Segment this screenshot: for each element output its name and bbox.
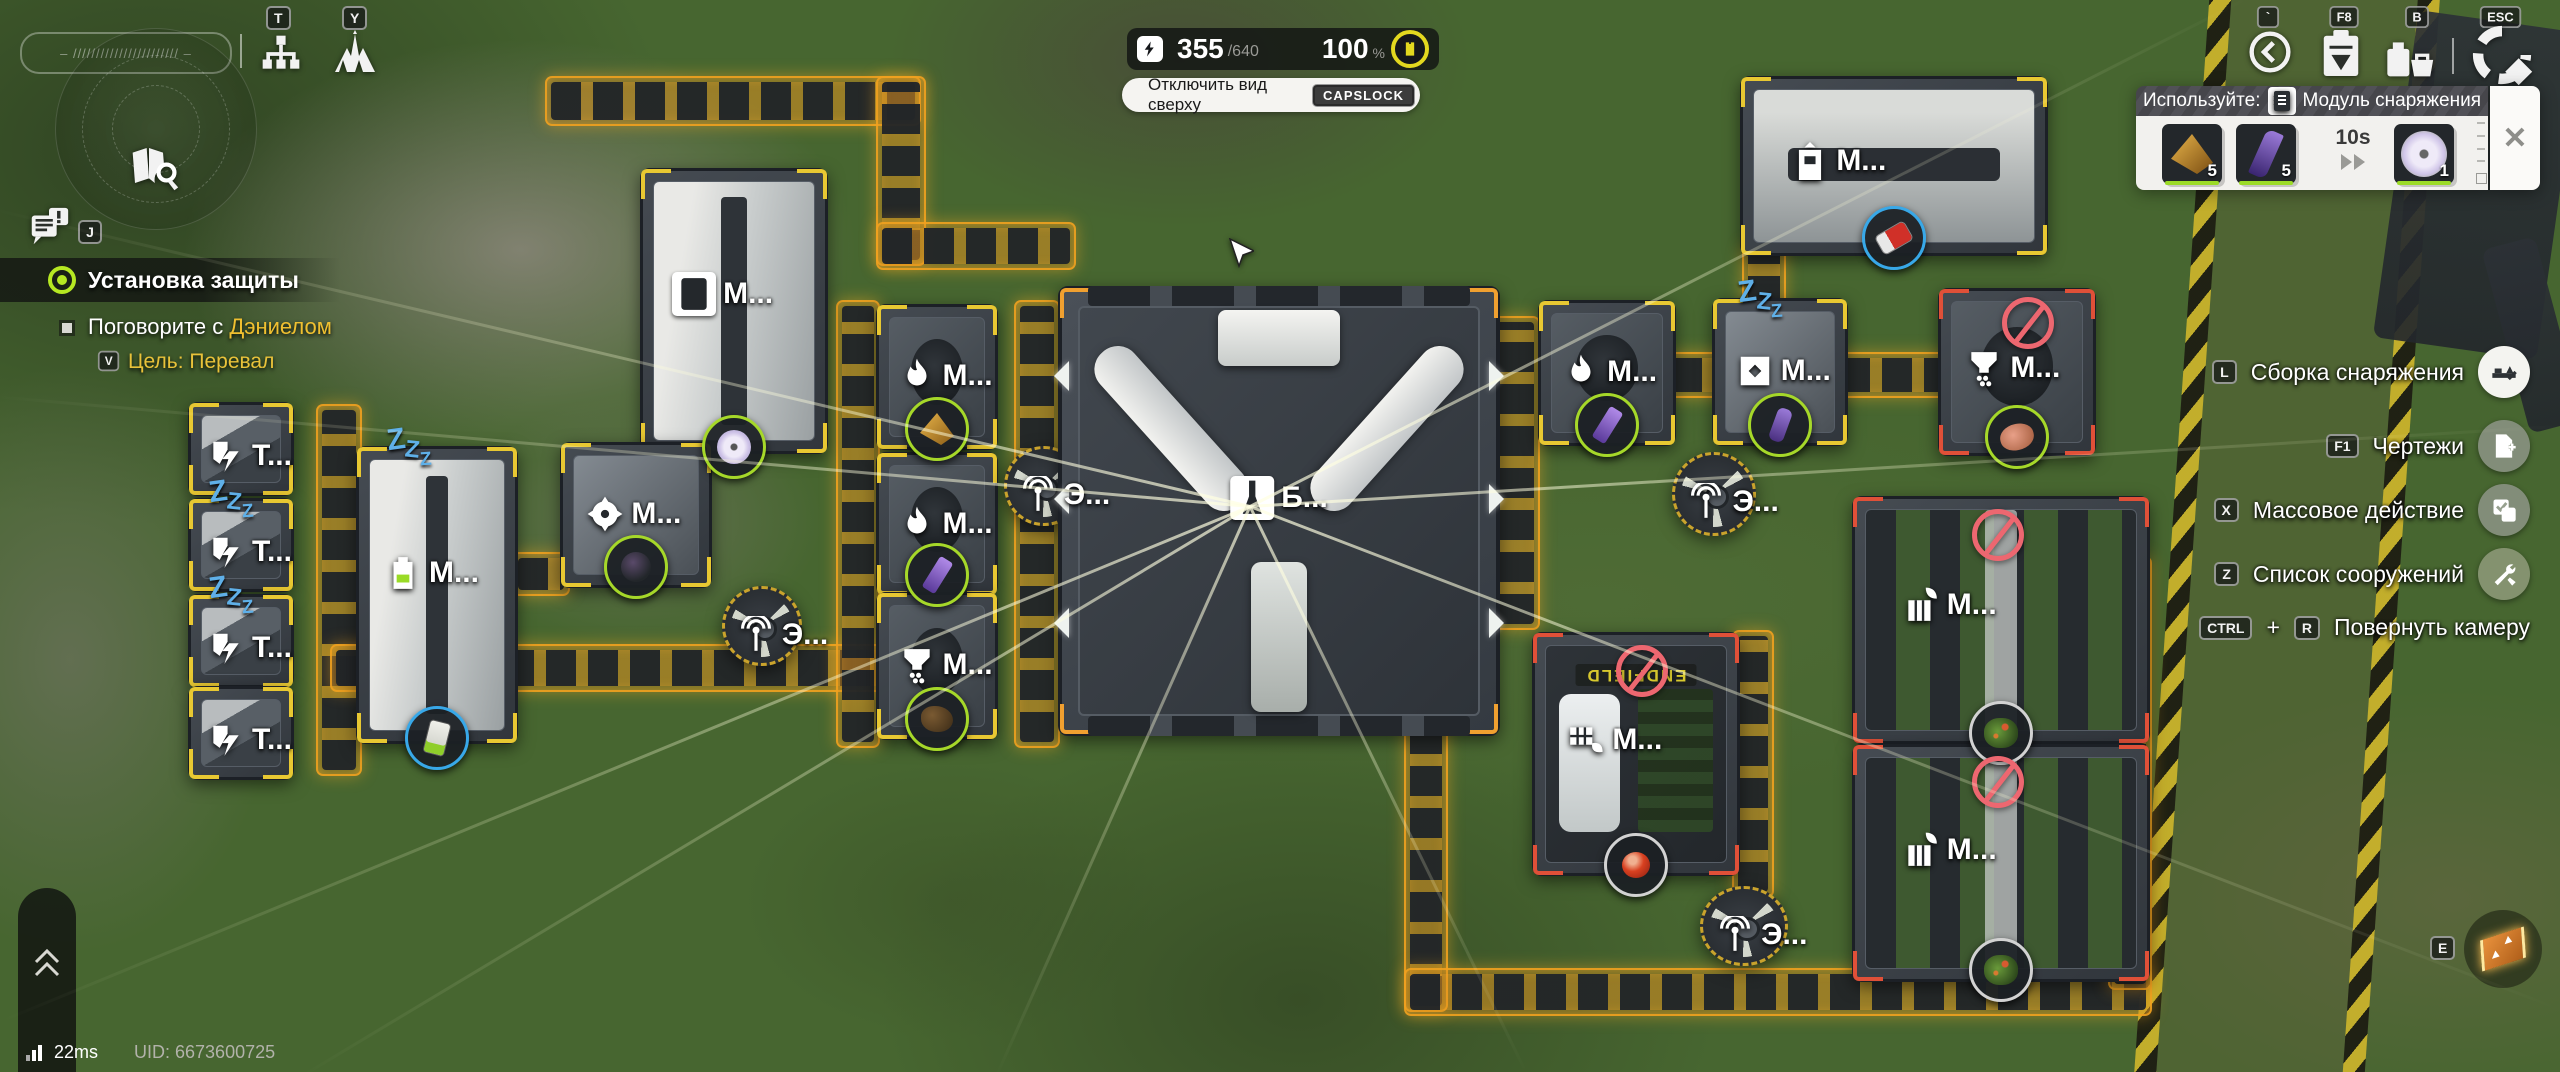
key-hint-e: E [2430,936,2455,960]
machine-printer[interactable]: М... [640,168,828,454]
corner-accent [189,403,219,433]
corner-accent [263,595,293,625]
corner-accent [263,403,293,433]
corner-accent [487,713,517,743]
corner-accent [2119,745,2149,775]
antenna-icon [1019,476,1057,514]
machine-body [369,459,505,731]
disabled-icon [1616,645,1668,697]
drill-icon [207,533,245,571]
machine-label-text: М... [723,277,773,311]
corner-accent [1645,415,1675,445]
topview-label: Отключить вид сверху [1148,75,1312,115]
machine-meat-sifter[interactable]: М... [1938,288,2096,456]
corner-accent [1468,288,1498,318]
disabled-icon [2002,297,2054,349]
corner-accent [1060,704,1090,734]
corner-accent [877,565,907,595]
machine-packager[interactable]: ZZZМ... [1712,298,1848,446]
module-name: Модуль снаряжения [2303,90,2482,112]
machine-label-text: М... [1781,354,1831,388]
machine-label-text: М... [631,497,681,531]
corner-accent [1539,415,1569,445]
corner-accent [1713,415,1743,445]
machine-label: М... [1965,349,2060,387]
flame-icon [1562,353,1600,391]
machine-greenhouse-2[interactable]: М... [1852,744,2150,982]
machine-label-text: Э... [1732,485,1778,519]
machine-label-text: Т... [252,631,292,665]
io-item-badge [604,535,668,599]
crystal-item-icon [1591,406,1623,444]
io-item-badge [1969,938,2033,1002]
hierarchy-icon[interactable] [258,32,304,76]
corner-accent [1817,299,1847,329]
machine-garage[interactable]: М... [1740,76,2048,256]
status-bar: 22ms UID: 6673600725 [0,1032,340,1072]
corner-accent [1533,845,1563,875]
corner-accent [967,305,997,335]
key-hint-z: Z [2214,562,2239,586]
quest-title: Установка защиты [88,267,299,294]
corner-accent [1817,415,1847,445]
sifter-icon [898,646,936,684]
durability-bar [2165,181,2219,185]
dark-item-icon [621,552,651,582]
io-item-badge [905,543,969,607]
machine-platform[interactable]: Б... [1058,286,1500,736]
mass-action-icon[interactable] [2478,484,2530,536]
power-current: 355 [1177,33,1224,65]
doc-icon [672,272,716,316]
machine-assembler[interactable]: М... [560,442,712,588]
shortcut-rotate-camera[interactable]: CTRL + R Повернуть камеру [2199,614,2530,641]
corner-accent [2065,289,2095,319]
key-hint-v: V [98,351,120,371]
key-hint-y: Y [342,6,367,30]
power-status-bar: 355 /640 100 % [1127,28,1439,70]
purple-fiber-item [2248,128,2284,179]
module-slot-3[interactable]: 1 [2394,124,2454,184]
machine-label-text: М... [1612,723,1662,757]
machine-label: М... [1902,831,1997,869]
module-timer: 10s [2324,126,2382,170]
ham-item-icon [1998,421,2037,454]
panel-scrollbar[interactable] [2476,122,2486,184]
machine-turbine-4[interactable]: Э... [1700,886,1788,966]
module-doc-icon [2268,87,2296,115]
corner-accent [967,709,997,739]
bottle-item-icon [1767,407,1793,444]
machine-greenhouse-1[interactable]: М... [1852,496,2150,744]
topview-toggle[interactable]: Отключить вид сверху CAPSLOCK [1122,78,1420,112]
shortcut-gear-assembly[interactable]: L Сборка снаряжения [2212,346,2530,398]
machine-label: Т... [207,721,292,759]
mouse-cursor [1228,238,1254,272]
sifter-icon [1965,349,2003,387]
machine-turbine-3[interactable]: Э... [1672,452,1756,536]
durability-bar [2239,181,2293,185]
corner-accent [263,499,293,529]
drill-icon [207,437,245,475]
crystal-item-icon [921,556,953,594]
key-hint-f8: F8 [2329,6,2359,28]
close-button[interactable]: ✕ [2490,86,2540,190]
flame-icon [898,357,936,395]
machine-generator[interactable]: ZZZМ... [356,446,518,744]
antenna-icon [1716,916,1754,954]
corner-accent [357,713,387,743]
luggage-icon[interactable] [2384,36,2442,80]
io-item-badge [702,415,766,479]
chevron-up-icon [32,946,62,980]
key-hint-l: L [2212,360,2237,384]
belt-port-icon [1489,608,1504,638]
machine-label: Э... [1687,483,1778,521]
power-percent: 100 [1322,33,1369,65]
arm-column [1251,562,1307,712]
corner-accent [561,557,591,587]
machine-label: М... [384,554,479,592]
machine-label-text: Э... [782,618,828,652]
machine-turret-4[interactable]: Т... [188,686,294,780]
corner-accent [1939,289,1969,319]
corner-accent [2119,951,2149,981]
machine-label-text: М... [1947,833,1997,867]
structures-wrench-icon[interactable] [2478,548,2530,600]
machine-label: Э... [737,616,828,654]
corner-accent [1539,301,1569,331]
corner-accent [1709,845,1739,875]
corner-accent [877,305,907,335]
corner-accent [1645,301,1675,331]
lightning-icon [1137,36,1163,62]
module-slot-2[interactable]: 5 [2236,124,2296,184]
fast-forward-icon [2324,154,2382,170]
shortcut-structure-list[interactable]: Z Список сооружений [2214,548,2530,600]
key-hint-t: T [266,6,291,30]
solar-icon [1567,721,1605,759]
corner-accent [641,169,671,199]
corner-accent [1709,633,1739,663]
slot-count: 5 [2208,161,2217,181]
corner-accent [1741,225,1771,255]
machine-furnace-1[interactable]: М... [876,304,998,450]
corner-accent [967,565,997,595]
corner-accent [1468,704,1498,734]
use-panel-header: Используйте: Модуль снаряжения [2136,86,2488,116]
machine-label-text: Т... [252,535,292,569]
plant-icon [1902,831,1940,869]
plant-icon [1902,586,1940,624]
io-item-badge [1748,393,1812,457]
back-button[interactable] [2248,30,2292,74]
machine-label: М... [1562,353,1657,391]
corner-accent [967,453,997,483]
assembly-icon[interactable] [2478,346,2530,398]
conveyor-belt[interactable] [836,300,880,748]
blueprint-clipboard-icon[interactable] [2318,28,2364,78]
key-hint-capslock: CAPSLOCK [1312,84,1415,107]
corner-accent [1853,951,1883,981]
corner-accent [1741,77,1771,107]
conveyor-tile-icon [2480,926,2526,971]
belt-edge [1088,716,1470,736]
box-icon [1736,352,1774,390]
map-search-icon [128,141,184,197]
arm-head [1218,310,1340,366]
shortcut-mass-action[interactable]: X Массовое действие [2214,484,2531,536]
machine-label: М... [586,495,681,533]
machine-endfield-grower[interactable]: ENDFIELDМ... [1532,632,1740,876]
game-screen: Т...ZZZТ...ZZZТ...Т...ZZZМ...М...М...Э..… [0,0,2560,1072]
use-module-panel[interactable]: Используйте: Модуль снаряжения 5 5 10s 1 [2136,86,2540,190]
divider [2452,38,2454,74]
settings-gear-icon[interactable] [2470,24,2534,86]
quest-goal: Цель: Перевал [128,350,274,374]
io-item-badge [905,687,969,751]
machine-label: М... [1567,721,1662,759]
antenna-icon [1687,483,1725,521]
slot-count: 5 [2282,161,2291,181]
machine-label: М... [898,646,993,684]
conveyor-belt[interactable] [545,76,921,126]
signal-icon [26,1043,46,1061]
drill-icon [207,629,245,667]
machine-turbine-1[interactable]: Э... [722,586,802,666]
io-item-badge [405,706,469,770]
belt-edge [1088,286,1470,306]
corner-accent [1060,288,1090,318]
drill-icon [207,721,245,759]
minimap[interactable] [55,28,257,230]
battery-coin-icon [1391,30,1429,68]
flame-icon [898,505,936,543]
io-item-badge [905,397,969,461]
agv-item-icon [1875,222,1913,255]
machine-label: М... [1736,352,1831,390]
machine-label: Т... [207,533,292,571]
antenna-icon [737,616,775,654]
key-hint-ctrl: CTRL [2199,616,2252,640]
corner-accent [1533,633,1563,663]
sleep-icon: ZZZ [209,571,254,605]
machine-label-text: М... [1836,144,1886,178]
corner-accent [2017,225,2047,255]
corner-accent [877,453,907,483]
machine-label: М... [1902,586,1997,624]
machine-turret-3[interactable]: ZZZТ... [188,594,294,688]
divider [240,34,242,68]
corner-accent [2119,713,2149,743]
machine-label-text: М... [1607,355,1657,389]
sleep-icon: ZZZ [209,475,254,509]
sleep-icon: ZZZ [1738,275,1783,309]
machine-label-text: М... [1947,588,1997,622]
belt-port-icon [1054,361,1069,391]
machine-label-text: М... [943,507,993,541]
machine-label: М... [672,272,773,316]
machine-label: Т... [207,437,292,475]
machine-label-text: Э... [1761,918,1807,952]
objective-bullet [62,323,72,333]
machine-label: Т... [207,629,292,667]
port-icon [1791,142,1829,180]
key-hint-x: X [2214,498,2239,522]
corner-accent [1853,497,1883,527]
machine-label-text: Т... [252,723,292,757]
module-slot-1[interactable]: 5 [2162,124,2222,184]
plant-item-icon [1984,955,2018,985]
corner-accent [263,687,293,717]
key-hint-backtick: ` [2257,6,2279,28]
machine-label-text: Т... [252,439,292,473]
corner-accent [877,593,907,623]
battery-icon [384,554,422,592]
ping-value: 22ms [54,1042,98,1063]
saw-icon [586,495,624,533]
ore-item-icon [921,706,953,732]
io-item-badge [1862,206,1926,270]
io-item-badge [1575,393,1639,457]
uid-value: UID: 6673600725 [134,1042,275,1063]
machine-label: М... [1791,142,1886,180]
corner-accent [357,447,387,477]
disabled-icon [1972,509,2024,561]
sleep-icon: ZZZ [387,423,432,457]
quest-objective: Поговорите с Дэниелом [88,314,332,340]
machine-label-text: М... [429,556,479,590]
slot-count: 1 [2440,161,2449,181]
corner-accent [1939,425,1969,455]
corner-accent [189,687,219,717]
machine-label-text: М... [943,359,993,393]
key-hint-b: B [2405,6,2429,28]
machine-label: М... [898,505,993,543]
plant-item-icon [1984,718,2018,748]
battery-item-icon [423,720,450,756]
plus-sign: + [2266,614,2279,641]
npc-name: Дэниелом [229,314,332,339]
corner-accent [797,423,827,453]
machine-label-text: М... [2010,351,2060,385]
close-icon: ✕ [2502,121,2527,156]
machine-label: Э... [1716,916,1807,954]
corner-accent [2065,425,2095,455]
mountain-pass-icon[interactable] [330,30,380,78]
quest-target-icon [48,266,76,294]
conveyor-belt[interactable] [876,222,1076,270]
power-max: /640 [1228,43,1259,61]
durability-bar [2397,181,2451,185]
io-item-badge [1604,833,1668,897]
corner-accent [681,557,711,587]
machine-label: М... [898,357,993,395]
corner-accent [797,169,827,199]
corner-accent [487,447,517,477]
corner-accent [2119,497,2149,527]
tomato-item-icon [1622,852,1650,878]
key-hint-r: R [2294,616,2320,640]
percent-sign: % [1373,45,1385,61]
